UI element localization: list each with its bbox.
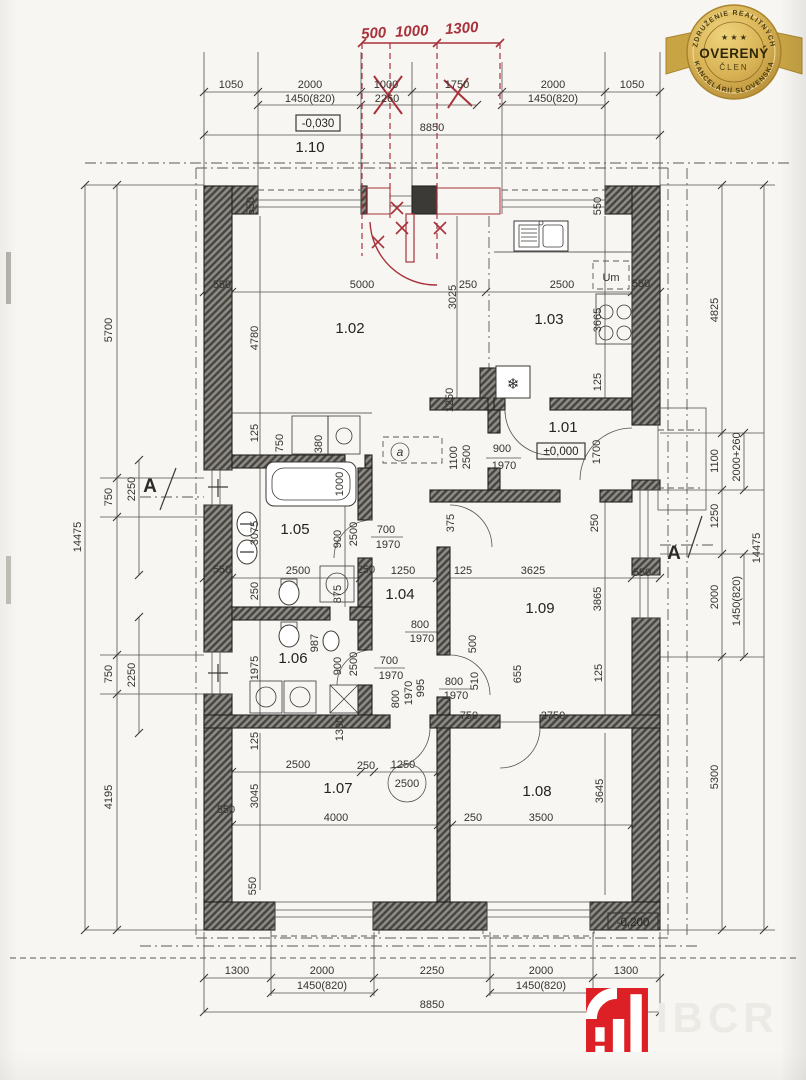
section-label-a-left: A — [143, 476, 157, 497]
scan-artifacts — [6, 252, 11, 604]
dim-label: 995 — [415, 679, 427, 697]
dim-label: 2250 — [126, 477, 138, 501]
dim-label: 2000+260 — [731, 432, 743, 481]
room-label-1-07: 1.07 — [323, 780, 352, 797]
dim-label: 250 — [357, 564, 375, 576]
boiler-icon — [336, 428, 352, 444]
dim-label: 2000 — [310, 965, 334, 977]
dim-label: 1970 — [410, 633, 434, 645]
room-label-1-05: 1.05 — [280, 521, 309, 538]
dim-label: 900 — [332, 657, 344, 675]
dim-label: 2000 — [541, 79, 565, 91]
dim-label: 550 — [213, 564, 231, 576]
dim-label: 500 — [467, 635, 479, 653]
dim-label: 2500 — [395, 778, 419, 790]
room-label-1-04: 1.04 — [385, 586, 414, 603]
dim-label: 5300 — [709, 765, 721, 789]
dim-label: 2500 — [461, 445, 473, 469]
room-label-1-02: 1.02 — [335, 320, 364, 337]
room-label-1-03: 1.03 — [534, 311, 563, 328]
dim-label: 4780 — [249, 326, 261, 350]
dim-label: 2000 — [298, 79, 322, 91]
dim-label: 14475 — [751, 533, 763, 564]
dim-label: 550 — [247, 877, 259, 895]
dim-label: 750 — [103, 488, 115, 506]
agency-logo — [586, 988, 648, 1052]
room-label-1-08: 1.08 — [522, 783, 551, 800]
dim-label: 125 — [593, 664, 605, 682]
dim-label: 1300 — [225, 965, 249, 977]
dim-label: 2250 — [126, 663, 138, 687]
dim-label: 4825 — [709, 298, 721, 322]
dim-label: 380 — [313, 435, 325, 453]
dim-label: 1100 — [448, 446, 460, 470]
toilet-icon — [279, 581, 299, 605]
dim-label: 1300 — [614, 965, 638, 977]
dim-label: 550 — [217, 804, 235, 816]
level-label: -0,030 — [302, 118, 335, 130]
room-label-1-10: 1.10 — [295, 139, 324, 156]
dim-label: 800 — [445, 676, 463, 688]
sink-icon — [323, 631, 339, 651]
dim-label: 3865 — [592, 587, 604, 611]
dim-label: 3045 — [249, 784, 261, 808]
kitchen-sink-icon — [514, 221, 568, 251]
dim-label: 750 — [274, 434, 286, 452]
dim-label: 750 — [103, 665, 115, 683]
dim-label: 1750 — [445, 79, 469, 91]
dim-label: 800 — [390, 690, 402, 708]
dim-label: 125 — [454, 565, 472, 577]
dim-label: Um — [602, 272, 619, 284]
dim-label: 250 — [357, 760, 375, 772]
dim-label: 2500 — [286, 759, 310, 771]
dim-label: 14475 — [72, 522, 84, 553]
dim-label: 8850 — [420, 122, 444, 134]
dim-label: 1300 — [334, 717, 346, 741]
dim-label: 1975 — [249, 656, 261, 680]
dim-label: 2000 — [709, 585, 721, 609]
attic-access: a — [383, 437, 442, 463]
dim-label: 1000 — [334, 472, 346, 496]
badge-subtitle: ČLEN — [719, 63, 748, 72]
dim-label: 1450(820) — [528, 93, 578, 105]
room-label-1-06: 1.06 — [278, 650, 307, 667]
room-label-1-01: 1.01 — [548, 419, 577, 436]
dim-label: 1250 — [391, 565, 415, 577]
dim-label: 1450(820) — [516, 980, 566, 992]
verified-member-badge: ZDRUŽENIE REALITNÝCH KANCELÁRIÍ SLOVENSK… — [664, 0, 804, 110]
dim-label: 3500 — [529, 812, 553, 824]
floor-plan-drawing: ❄ a A A — [0, 0, 806, 1080]
dim-label: 550 — [592, 197, 604, 215]
dim-label: 250 — [464, 812, 482, 824]
dim-label: 1050 — [620, 79, 644, 91]
dim-label: 550 — [632, 278, 650, 290]
dim-label: 3075 — [249, 521, 261, 545]
dim-label: 550 — [245, 197, 257, 215]
room-label-1-09: 1.09 — [525, 600, 554, 617]
dim-label: 125 — [592, 373, 604, 391]
dim-label: 125 — [249, 732, 261, 750]
dim-label: 1450(820) — [285, 93, 335, 105]
dim-label: 1970 — [403, 681, 415, 705]
dim-label: 987 — [309, 634, 321, 652]
dryer-icon — [284, 681, 316, 713]
dim-label: 1050 — [219, 79, 243, 91]
badge-title: OVERENÝ — [699, 46, 769, 61]
dim-label: 1250 — [709, 504, 721, 528]
dim-label: 1450(820) — [731, 576, 743, 626]
dim-label: 700 — [377, 524, 395, 536]
snowflake-icon: ❄ — [507, 376, 520, 393]
dim-label: 3645 — [594, 779, 606, 803]
dim-label: 510 — [469, 672, 481, 690]
dim-label: 550 — [213, 279, 231, 291]
interior-dimension-labels: 550 550 550 5000 3025 250 4780 1250 2500… — [213, 197, 651, 895]
dim-label: 700 — [380, 655, 398, 667]
scanned-floor-plan-page: ❄ a A A — [0, 0, 806, 1080]
dim-label: 900 — [332, 530, 344, 548]
dim-label: 2250 — [420, 965, 444, 977]
dim-label: 1970 — [376, 539, 400, 551]
dim-label: 1970 — [379, 670, 403, 682]
logo-watermark-text: IBCR — [656, 994, 779, 1042]
dim-label: 375 — [445, 514, 457, 532]
red-note: 500 — [361, 24, 388, 43]
dim-label: 4195 — [103, 785, 115, 809]
section-label-a-right: A — [667, 543, 681, 564]
dim-label: 750 — [460, 710, 478, 722]
dim-label: 250 — [459, 279, 477, 291]
dim-label: 1100 — [709, 449, 721, 473]
dim-label: 5000 — [350, 279, 374, 291]
red-note: 1000 — [395, 22, 430, 41]
dim-label: 1250 — [444, 388, 456, 412]
badge-stars: ★ ★ ★ — [721, 33, 747, 42]
dim-label: 800 — [411, 619, 429, 631]
walls — [204, 186, 660, 930]
dim-label: 900 — [493, 443, 511, 455]
dim-label: 2260 — [375, 93, 399, 105]
dim-label: 4000 — [324, 812, 348, 824]
dim-label: 2750 — [541, 710, 565, 722]
dim-label: 1700 — [591, 440, 603, 464]
dim-label: 3025 — [447, 285, 459, 309]
dim-label: 550 — [633, 567, 651, 579]
dim-label: 2500 — [286, 565, 310, 577]
washer-icon — [250, 681, 282, 713]
dim-label: 1000 — [374, 79, 398, 91]
dim-label: 2000 — [529, 965, 553, 977]
access-label: a — [397, 445, 404, 459]
dim-label: 250 — [589, 514, 601, 532]
toilet-icon — [279, 625, 299, 647]
dim-label: 2500 — [348, 652, 360, 676]
dim-label: 250 — [249, 582, 261, 600]
dim-label: 655 — [512, 665, 524, 683]
dim-label: 1450(820) — [297, 980, 347, 992]
level-label: ±0,000 — [543, 446, 578, 458]
dim-label: 5700 — [103, 318, 115, 342]
dim-label: 3665 — [592, 308, 604, 332]
dim-label: 2500 — [348, 522, 360, 546]
red-markup-annotation: 500 1000 1300 — [358, 19, 504, 285]
dim-label: 3625 — [521, 565, 545, 577]
door-swings — [334, 410, 632, 768]
dim-label: 8850 — [420, 999, 444, 1011]
dim-label: 875 — [332, 585, 344, 603]
level-label: -0,200 — [617, 917, 650, 929]
red-note: 1300 — [444, 19, 479, 38]
dim-label: 2500 — [550, 279, 574, 291]
dim-label: 125 — [249, 424, 261, 442]
dim-label: 1970 — [444, 690, 468, 702]
dim-label: 1970 — [492, 460, 516, 472]
